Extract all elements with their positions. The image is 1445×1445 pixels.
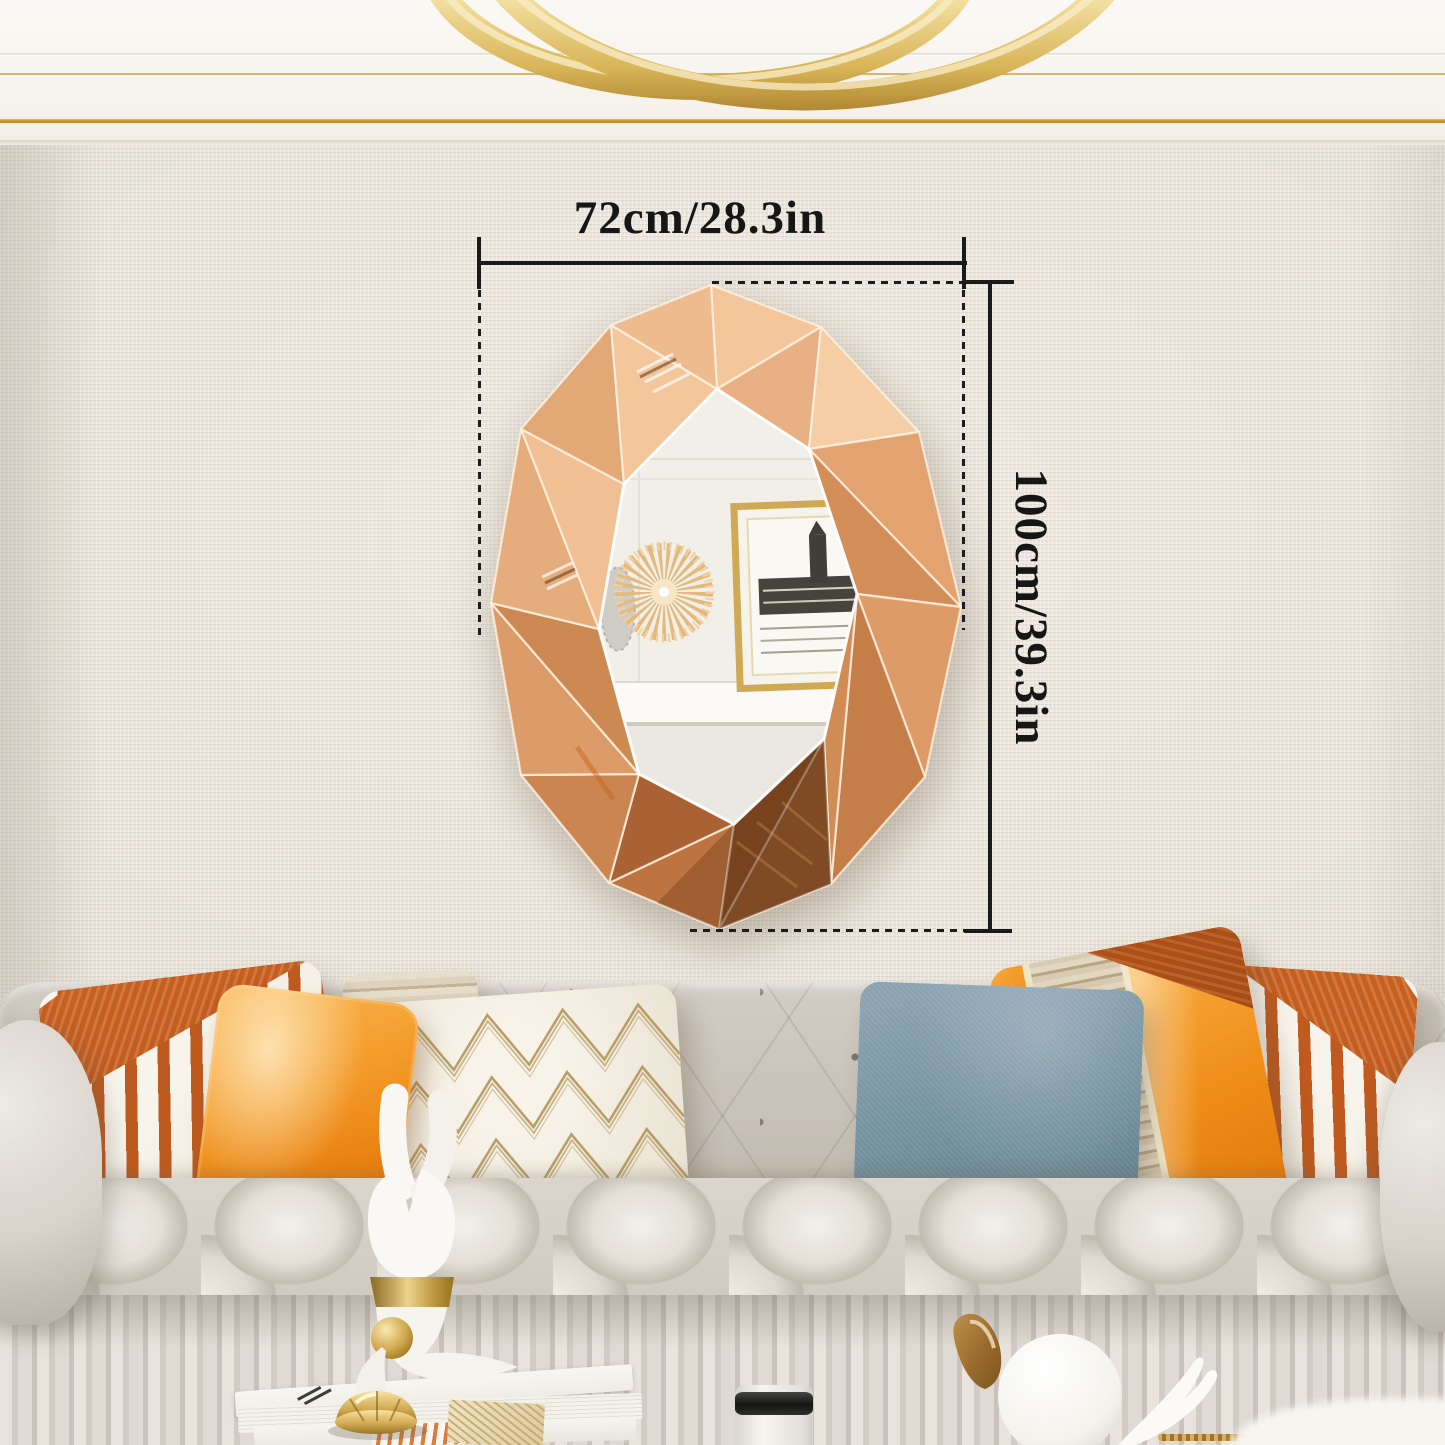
width-tick-left [477, 237, 481, 289]
extension-line-right [962, 290, 965, 630]
candle-jar-black-lid [735, 1392, 813, 1415]
extension-line-bottom [690, 929, 966, 932]
extension-line-left [478, 290, 481, 635]
figurine-arm-extended [404, 1353, 518, 1381]
height-dimension-line [988, 280, 992, 933]
gold-ring-pendant-light [360, 0, 1150, 150]
white-hand-wing [1118, 1357, 1217, 1445]
white-egg-bird-sculpture [940, 1300, 1260, 1445]
living-room-product-photo: 72cm/28.3in 100cm/39.3in [0, 0, 1445, 1445]
width-dimension-label: 72cm/28.3in [574, 191, 827, 245]
width-dimension-line [478, 261, 967, 265]
height-tick-bottom [964, 929, 1012, 933]
white-handstand-figurine [320, 1015, 600, 1445]
faceted-rose-gold-wall-mirror [487, 277, 967, 937]
egg-body [998, 1334, 1122, 1445]
height-dimension-label: 100cm/39.3in [1004, 468, 1058, 745]
extension-line-top [712, 281, 964, 284]
white-candle-jar [735, 1385, 813, 1445]
height-tick-top [962, 280, 1014, 284]
figurine-gold-band [370, 1277, 454, 1307]
